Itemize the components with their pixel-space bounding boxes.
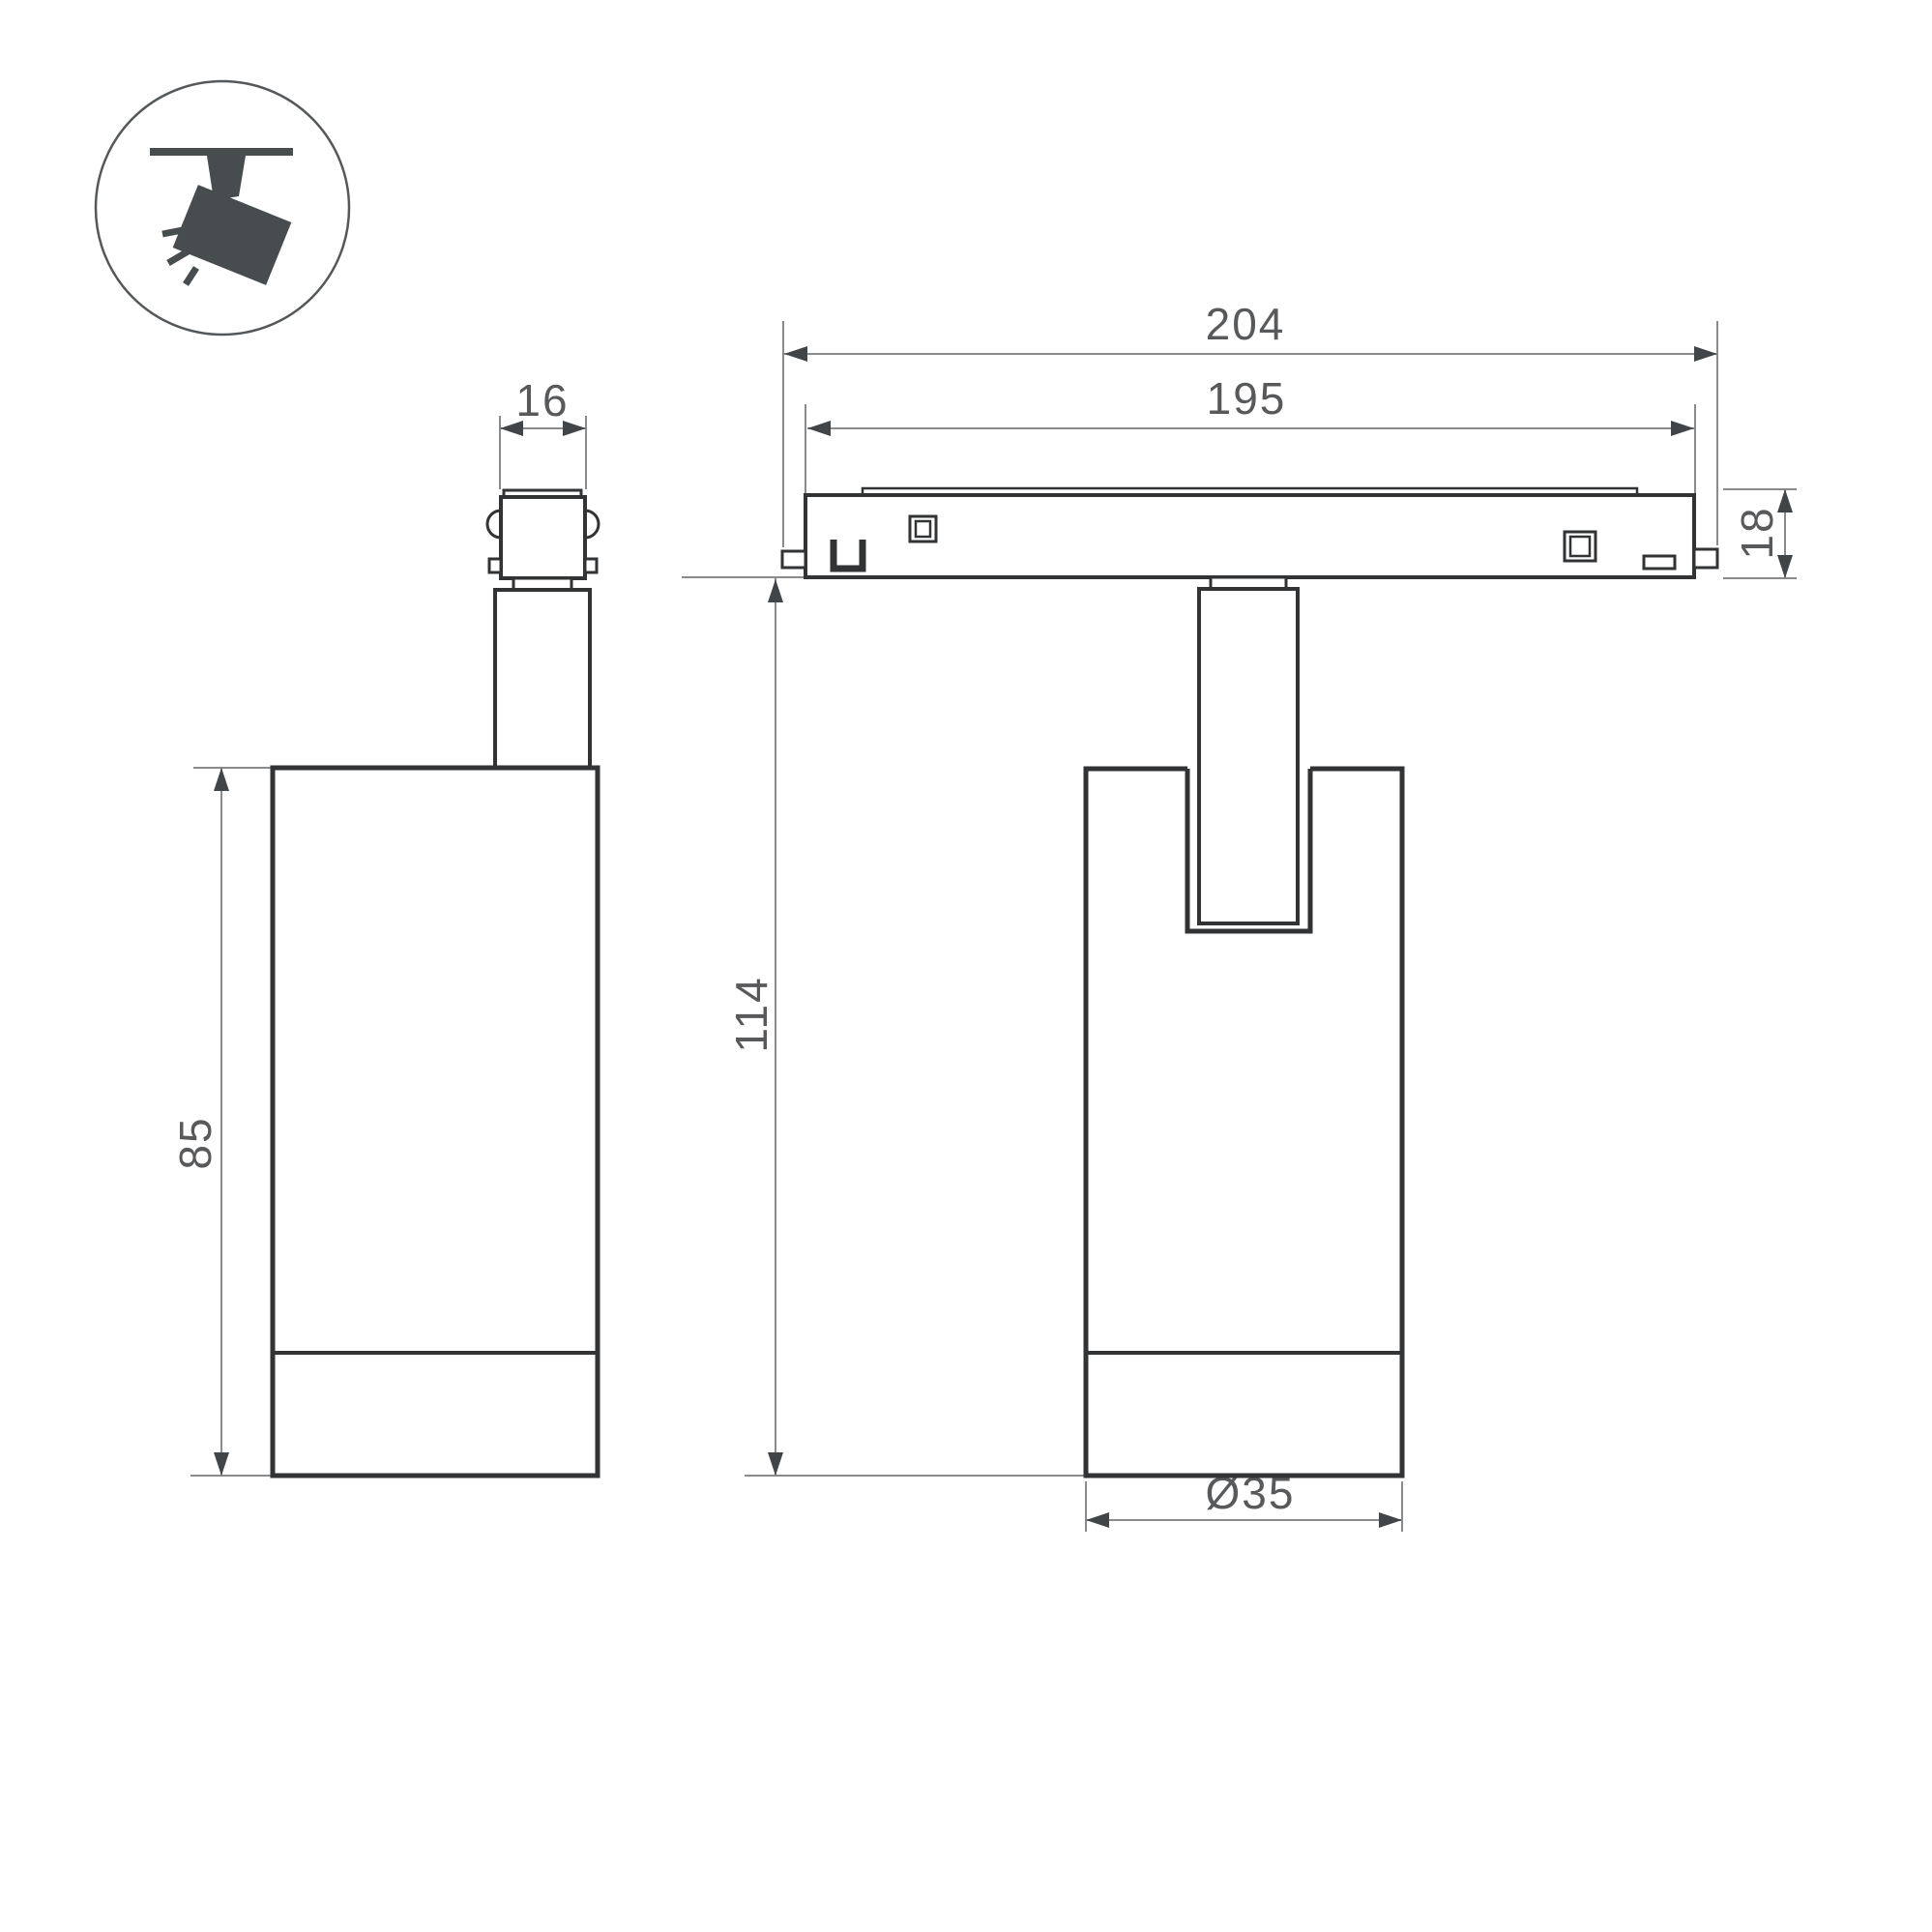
adapter-body <box>501 497 585 578</box>
track-end-tab-left <box>782 551 805 568</box>
track-end-tab-right <box>1694 549 1717 568</box>
dim-label-body-height-side: 85 <box>170 1116 220 1169</box>
lamp-body-side <box>273 768 598 1476</box>
dim-label-track-length-outer: 204 <box>1206 299 1286 349</box>
track-body <box>805 495 1694 577</box>
icon-light-ray-1 <box>162 229 188 234</box>
dim-label-track-length-inner: 195 <box>1207 373 1287 424</box>
adapter-tab-right <box>585 559 597 572</box>
technical-drawing-page: 16 204 195 18 <box>0 0 1932 1932</box>
dim-label-track-height: 18 <box>1732 506 1782 559</box>
product-icon <box>96 81 349 335</box>
stem-front <box>1199 589 1298 923</box>
technical-drawing-canvas: 16 204 195 18 <box>0 0 1932 1932</box>
stem-side <box>495 590 590 768</box>
dim-label-adapter-width: 16 <box>515 375 569 425</box>
dim-label-fixture-height: 114 <box>726 976 776 1052</box>
icon-ceiling-line <box>150 148 293 156</box>
adapter-tab-left <box>489 559 501 572</box>
